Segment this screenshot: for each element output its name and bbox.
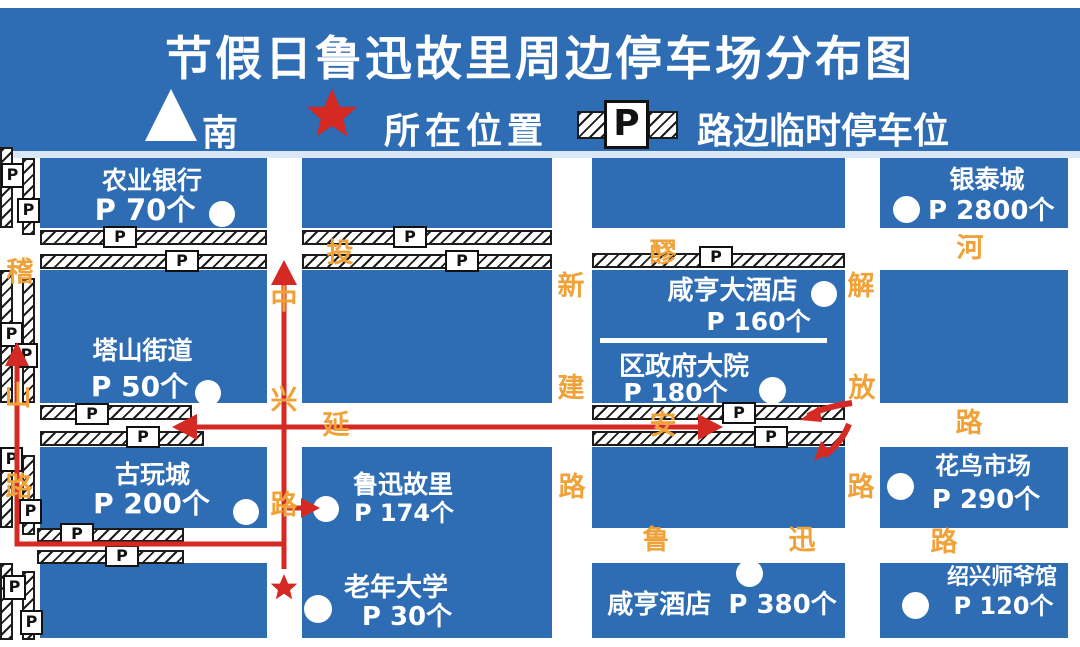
street-jiefang-3: 路 (845, 472, 877, 504)
street-luxun-1: 鲁 (640, 525, 672, 557)
street-zhongxing-2: 兴 (268, 385, 300, 417)
route-arrows (0, 0, 1080, 647)
route-jishan (17, 360, 285, 544)
street-taolaohe-3: 河 (954, 233, 986, 265)
street-jishan-3: 路 (3, 472, 35, 504)
legend-star-icon (307, 89, 357, 137)
street-jishan-1: 稽 (4, 257, 36, 289)
street-yanan-2: 安 (647, 410, 679, 442)
street-jiefang-1: 解 (845, 271, 877, 303)
street-jishan-2: 山 (2, 381, 34, 413)
street-zhongxing-3: 路 (268, 490, 300, 522)
arrow-right-yanan (698, 414, 723, 440)
arrow-hook-upper (800, 406, 822, 422)
street-xinjian-1: 新 (555, 271, 587, 303)
arrow-branch (301, 498, 320, 518)
street-taolaohe-2: 醪 (647, 238, 679, 270)
street-yanan-3: 路 (953, 408, 985, 440)
parking-map: 节假日鲁迅故里周边停车场分布图 南 所在位置 P 路边临时停车位 (0, 0, 1080, 647)
arrow-hook-lower (814, 441, 831, 461)
street-zhongxing-1: 中 (268, 285, 300, 317)
street-taolaohe-1: 投 (324, 238, 356, 270)
arrow-up-jishan (5, 342, 29, 366)
street-luxun-3: 路 (928, 527, 960, 559)
street-xinjian-2: 建 (555, 373, 587, 405)
current-location-star (271, 574, 297, 599)
street-jiefang-2: 放 (846, 373, 878, 405)
street-xinjian-3: 路 (556, 472, 588, 504)
arrow-left-yanan (172, 414, 197, 440)
arrow-up-zhongxing (271, 260, 297, 285)
street-luxun-2: 迅 (786, 525, 818, 557)
street-yanan-1: 延 (320, 410, 352, 442)
